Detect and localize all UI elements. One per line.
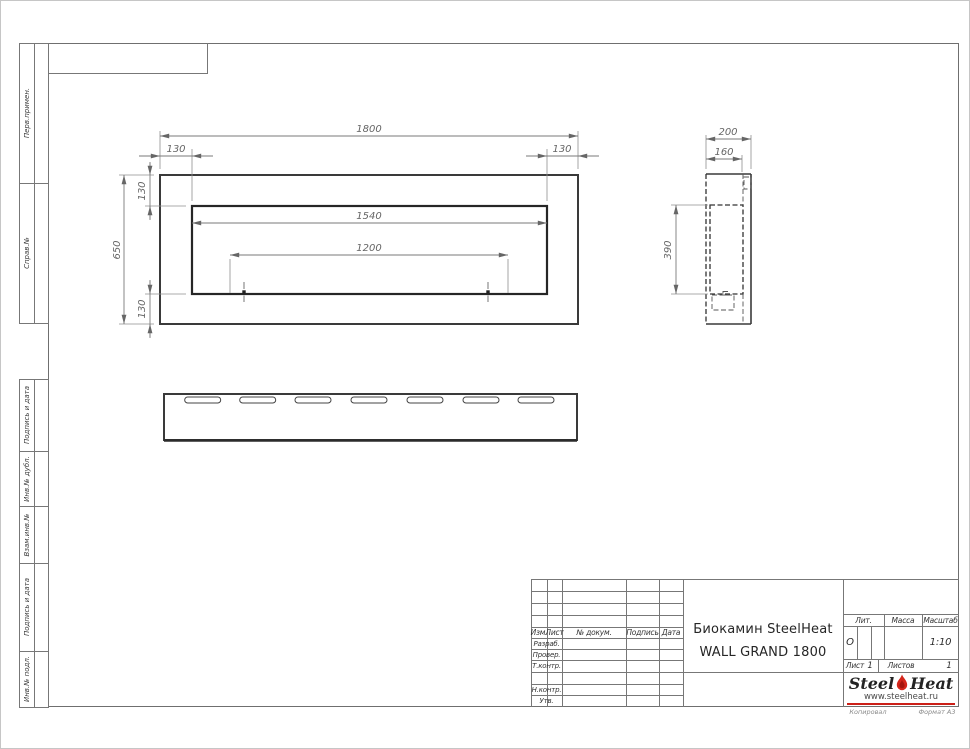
front-view: 1800 130 130 1540 1200 650 130 xyxy=(112,124,599,338)
dim-offset-top: 130 xyxy=(137,181,148,200)
scale-label: Масштаб xyxy=(922,614,959,626)
dim-opening-width: 1540 xyxy=(356,211,381,222)
col-list: Лист xyxy=(547,627,562,638)
bottom-view xyxy=(164,394,577,441)
vent-slot xyxy=(518,397,554,403)
logo-text-heat: Heat xyxy=(910,675,953,692)
vent-slot xyxy=(185,397,221,403)
dim-mount-span: 1200 xyxy=(356,243,381,254)
scale-value: 1:10 xyxy=(922,626,959,659)
doc-title-line2: WALL GRAND 1800 xyxy=(685,645,841,663)
sheet-value: 1 xyxy=(865,659,875,672)
dim-depth: 200 xyxy=(718,127,737,138)
mass-label: Масса xyxy=(884,614,922,626)
top-bracket xyxy=(744,177,751,189)
doc-title-line1: Биокамин SteelHeat xyxy=(685,622,841,640)
vent-slot xyxy=(295,397,331,403)
col-doc: № докум. xyxy=(562,627,626,638)
side-view: 200 160 390 xyxy=(663,127,751,324)
hole-mark xyxy=(242,290,245,293)
vent-slot xyxy=(240,397,276,403)
logo-website: www.steelheat.ru xyxy=(844,693,958,702)
dim-overall-height: 650 xyxy=(112,240,123,259)
flame-icon xyxy=(895,674,909,692)
row-ncontrol: Н.контр. xyxy=(531,684,562,695)
dim-inner-depth: 160 xyxy=(714,147,733,158)
hole-mark xyxy=(486,290,489,293)
format-label: Формат А3 xyxy=(887,708,970,716)
row-checker: Провер. xyxy=(531,649,562,660)
dim-opening-height: 390 xyxy=(663,240,674,259)
row-approver: Утв. xyxy=(531,695,562,707)
vent-slot xyxy=(407,397,443,403)
vent-slot xyxy=(351,397,387,403)
drawing-sheet: Перв.примен. Справ.№ Подпись и дата Инв.… xyxy=(0,0,970,749)
burner-box xyxy=(712,295,734,310)
dim-overall-width: 1800 xyxy=(356,124,381,135)
row-developer: Разраб. xyxy=(531,638,562,649)
sheet-label: Лист xyxy=(845,659,865,672)
sheets-label: Листов xyxy=(885,659,917,672)
dim-offset-right: 130 xyxy=(552,144,571,155)
steelheat-logo: Steel Heat www.steelheat.ru xyxy=(844,673,958,706)
sheets-value: 1 xyxy=(943,659,955,672)
col-date: Дата xyxy=(659,627,683,638)
lit-value: О xyxy=(843,626,857,659)
logo-text-steel: Steel xyxy=(849,675,894,692)
logo-underline xyxy=(847,703,955,705)
col-sign: Подпись xyxy=(626,627,659,638)
dim-offset-left: 130 xyxy=(166,144,185,155)
vent-slot xyxy=(463,397,499,403)
dim-offset-bottom: 130 xyxy=(137,299,148,318)
lit-label: Лит. xyxy=(843,614,884,626)
row-tcontrol: Т.контр. xyxy=(531,660,562,672)
